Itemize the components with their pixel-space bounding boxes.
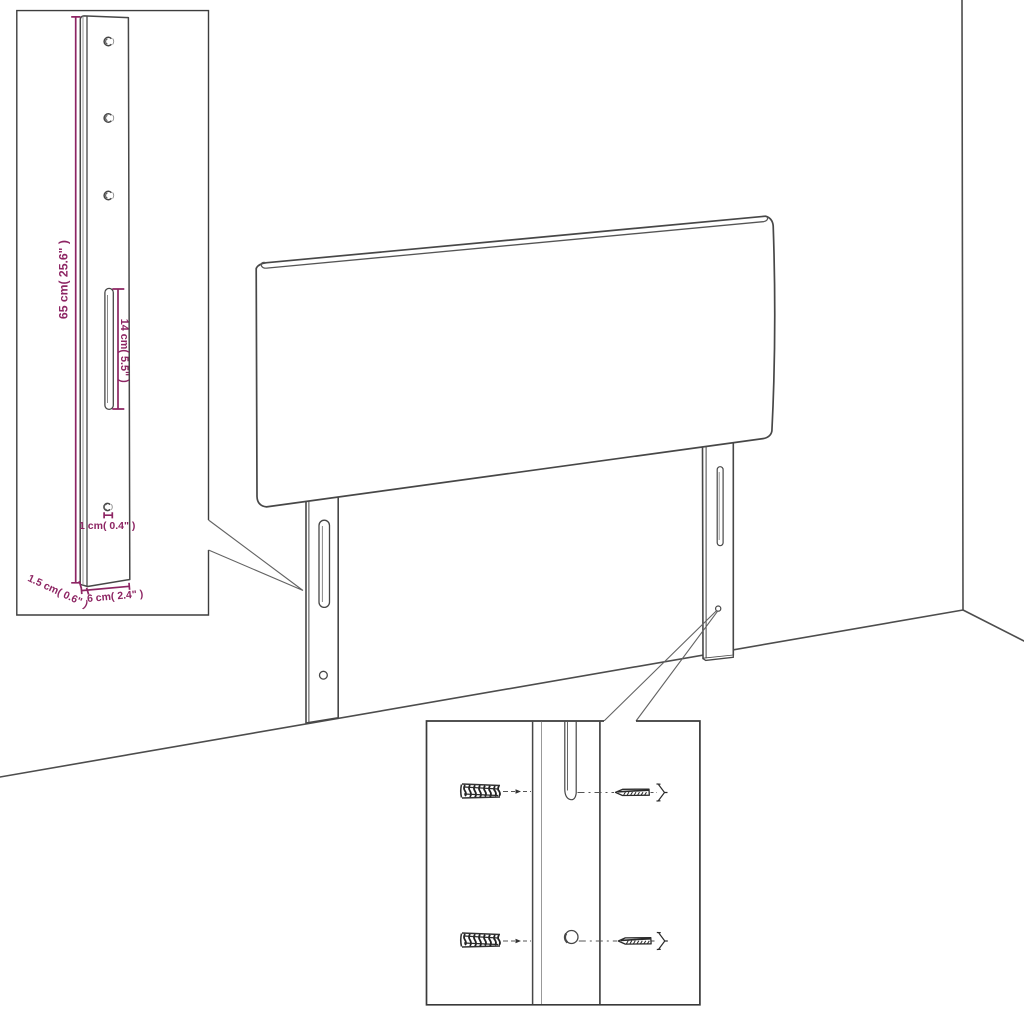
svg-text:14 cm( 5.5" ): 14 cm( 5.5" ) bbox=[118, 319, 130, 383]
svg-text:65 cm( 25.6" ): 65 cm( 25.6" ) bbox=[57, 240, 71, 319]
svg-text:1 cm( 0.4" ): 1 cm( 0.4" ) bbox=[79, 520, 135, 532]
